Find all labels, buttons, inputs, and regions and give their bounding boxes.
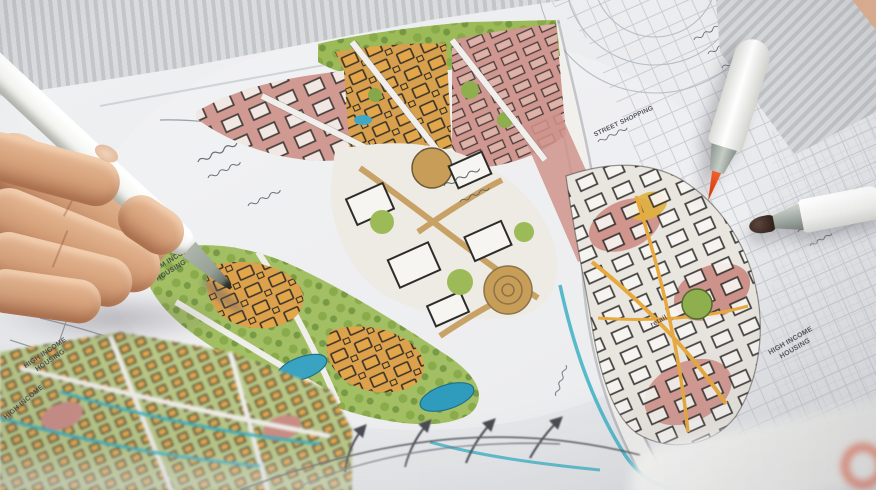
- orange-chisel-tip: [702, 170, 723, 202]
- blurred-marker-orange-ring: [842, 444, 876, 488]
- marker-collar: [771, 203, 804, 235]
- photo-scene: MEDIUM INCOME HOUSING HIGH INCOME HOUSIN…: [0, 0, 876, 490]
